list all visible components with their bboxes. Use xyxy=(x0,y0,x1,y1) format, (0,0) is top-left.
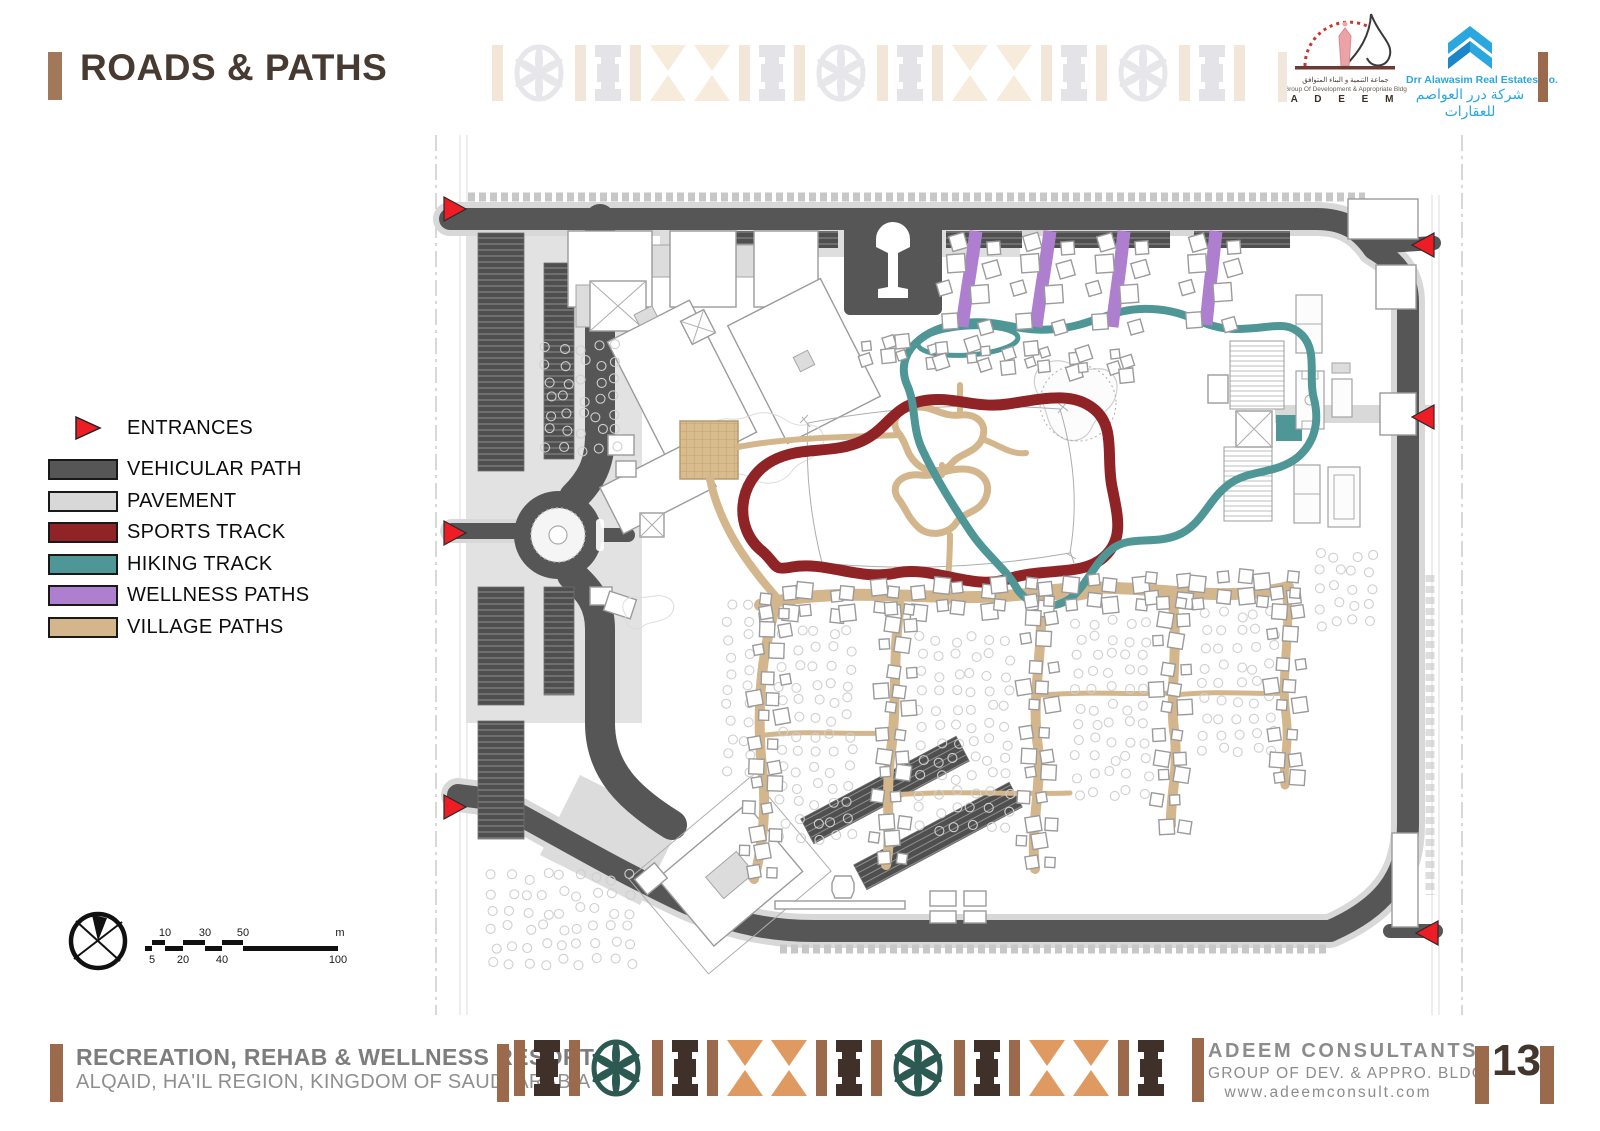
legend-row-vehicular: VEHICULAR PATH xyxy=(48,454,348,486)
footer-divider-bar xyxy=(1192,1038,1204,1102)
sports-track-swatch xyxy=(48,522,118,543)
alawasim-name: Drr Alawasim Real Estates Co. xyxy=(1406,74,1534,86)
consultant-name: ADEEM CONSULTANTS xyxy=(1208,1040,1448,1063)
page-number: 13 xyxy=(1492,1036,1541,1086)
page-number-bar-right xyxy=(1540,1046,1554,1104)
svg-text:20: 20 xyxy=(177,954,189,966)
adeem-logo-icon xyxy=(1283,10,1408,72)
legend-row-pavement: PAVEMENT xyxy=(48,486,348,518)
scale-bar: 10 30 50 m 5 20 40 100 xyxy=(140,922,355,970)
svg-text:50: 50 xyxy=(237,927,249,939)
title-accent-bar xyxy=(48,52,62,100)
svg-text:10: 10 xyxy=(159,927,171,939)
svg-text:m: m xyxy=(335,927,344,939)
north-arrow-compass xyxy=(62,905,134,977)
adeem-logo-arabic: جماعة التنمية و البناء المتوافق xyxy=(1283,77,1408,86)
adeem-logo-tagline: Group Of Development & Appropriate Bldg xyxy=(1283,86,1408,94)
adeem-logo: جماعة التنمية و البناء المتوافق Group Of… xyxy=(1283,10,1408,105)
alawasim-house-icon xyxy=(1406,24,1534,74)
footer-accent-bar-right xyxy=(497,1044,509,1102)
village-paths-swatch xyxy=(48,617,118,638)
legend-row-sports: SPORTS TRACK xyxy=(48,517,348,549)
svg-text:40: 40 xyxy=(216,954,228,966)
legend-label: ENTRANCES xyxy=(127,417,253,440)
svg-text:100: 100 xyxy=(329,954,347,966)
legend-label: WELLNESS PATHS xyxy=(127,584,309,607)
svg-text:5: 5 xyxy=(149,954,155,966)
legend-label: HIKING TRACK xyxy=(127,553,272,576)
wellness-paths-swatch xyxy=(48,585,118,606)
site-plan-map xyxy=(430,135,1505,1015)
consultant-website: www.adeemconsult.com xyxy=(1208,1084,1448,1102)
entrance-triangle-icon xyxy=(48,415,127,441)
legend-row-hiking: HIKING TRACK xyxy=(48,549,348,581)
legend-row-entrances: ENTRANCES xyxy=(48,408,348,448)
footer-accent-bar-left xyxy=(50,1044,63,1102)
consultant-block: ADEEM CONSULTANTS GROUP OF DEV. & APPRO.… xyxy=(1208,1040,1448,1102)
hiking-track-swatch xyxy=(48,554,118,575)
svg-text:30: 30 xyxy=(199,927,211,939)
alawasim-arabic: شركة درر العواصم للعقارات xyxy=(1406,86,1534,120)
vehicular-path-swatch xyxy=(48,459,118,480)
plaza-grid xyxy=(680,421,738,479)
header-divider-brown xyxy=(1538,52,1548,102)
legend-label: VILLAGE PATHS xyxy=(127,616,284,639)
adeem-logo-wordmark: A D E E M xyxy=(1283,94,1408,105)
legend-label: VEHICULAR PATH xyxy=(127,458,302,481)
alawasim-logo: Drr Alawasim Real Estates Co. شركة درر ا… xyxy=(1406,24,1534,120)
drawing-sheet: ROADS & PATHS جماعة التنمية و البناء الم… xyxy=(0,0,1600,1131)
sadu-pattern-band-bottom xyxy=(514,1030,1165,1106)
legend: ENTRANCES VEHICULAR PATH PAVEMENT SPORTS… xyxy=(48,408,348,643)
legend-row-village: VILLAGE PATHS xyxy=(48,612,348,644)
consultant-subtitle: GROUP OF DEV. & APPRO. BLDG xyxy=(1208,1065,1448,1083)
legend-label: SPORTS TRACK xyxy=(127,521,285,544)
pavement-swatch xyxy=(48,491,118,512)
sadu-pattern-band-top xyxy=(492,40,1258,106)
page-title: ROADS & PATHS xyxy=(80,47,387,89)
header-divider-cream xyxy=(1278,52,1287,102)
page-number-bar-left xyxy=(1475,1046,1489,1104)
legend-label: PAVEMENT xyxy=(127,490,236,513)
legend-row-wellness: WELLNESS PATHS xyxy=(48,580,348,612)
